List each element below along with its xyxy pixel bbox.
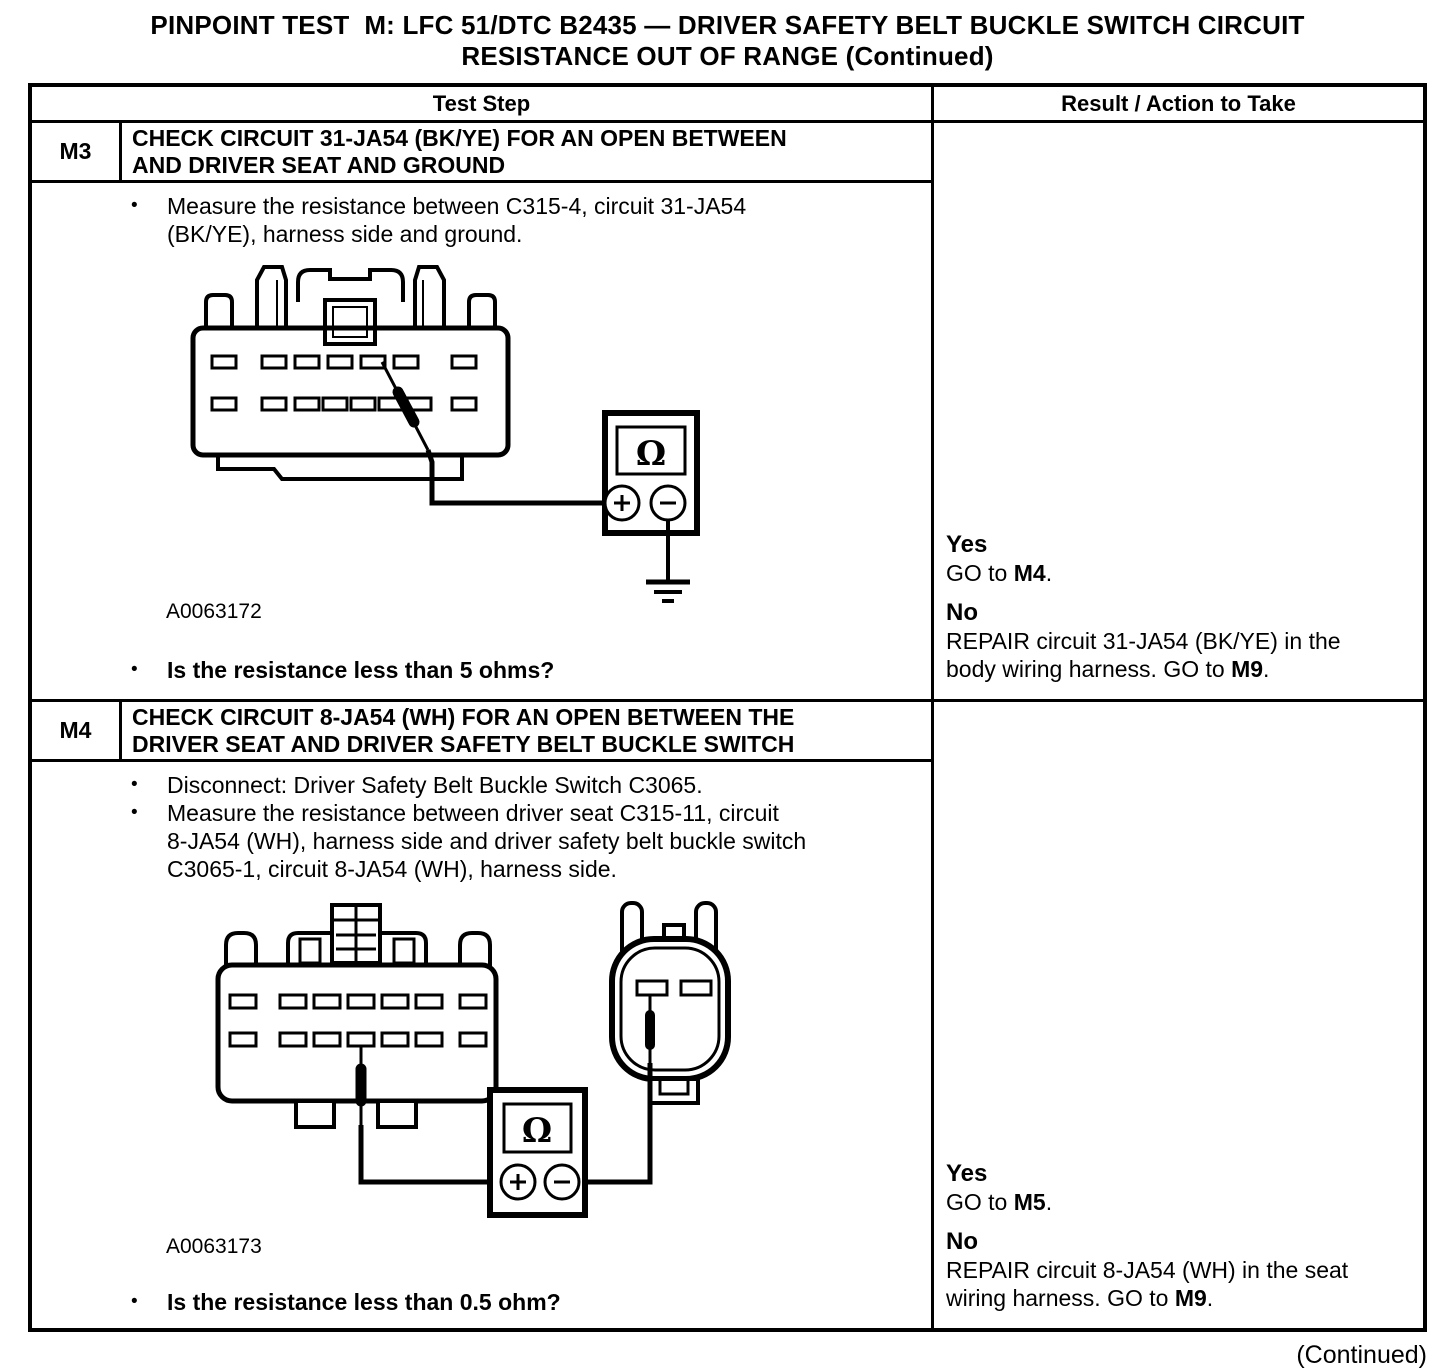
connector-buckle-c3065 <box>612 903 728 1103</box>
m4-yes-action-post: . <box>1046 1189 1052 1215</box>
omega-symbol: Ω <box>522 1111 552 1151</box>
ohmmeter: Ω <box>605 413 697 533</box>
m3-figure-id: A0063172 <box>166 600 262 624</box>
continued-note: (Continued) <box>28 1332 1429 1370</box>
bullet-icon: • <box>131 192 167 248</box>
m4-yes-action-pre: GO to <box>946 1189 1014 1215</box>
test-row-m4: M4 CHECK CIRCUIT 8-JA54 (WH) FOR AN OPEN… <box>32 702 1423 1328</box>
column-header-result-action: Result / Action to Take <box>931 87 1423 120</box>
pin-slots-top-row <box>212 356 476 368</box>
m3-yes-action-post: . <box>1046 560 1052 586</box>
m4-instruction-bullet-2: • Measure the resistance between driver … <box>32 799 931 883</box>
m4-step-title: CHECK CIRCUIT 8-JA54 (WH) FOR AN OPEN BE… <box>122 702 931 759</box>
test-lead-wire <box>428 450 606 503</box>
m4-question: • Is the resistance less than 0.5 ohm? <box>32 1288 931 1316</box>
column-header-test-step: Test Step <box>32 87 931 120</box>
m4-result-cell: Yes GO to M5. No REPAIR circuit 8-JA54 (… <box>931 702 1423 1328</box>
pin-slots-bottom-row <box>212 398 476 410</box>
bullet-icon: • <box>131 656 167 684</box>
page-title: PINPOINT TEST M: LFC 51/DTC B2435 — DRIV… <box>28 0 1427 72</box>
bullet-icon: • <box>131 1288 167 1316</box>
m3-test-step-cell: M3 CHECK CIRCUIT 31-JA54 (BK/YE) FOR AN … <box>32 123 931 699</box>
m3-connector-diagram: Ω <box>160 250 705 610</box>
pin-slots-top-row <box>230 995 486 1008</box>
m3-instruction-text: Measure the resistance between C315-4, c… <box>167 192 746 248</box>
m4-connector-diagram: Ω <box>160 895 780 1227</box>
m4-yes-action: GO to M5. <box>946 1188 1411 1216</box>
m3-no-action-target: M9 <box>1231 656 1263 682</box>
m3-yes-label: Yes <box>946 531 1411 559</box>
m3-yes-action-target: M4 <box>1014 560 1046 586</box>
m4-instruction-text-1: Disconnect: Driver Safety Belt Buckle Sw… <box>167 771 703 799</box>
m4-no-action: REPAIR circuit 8-JA54 (WH) in the seat w… <box>946 1256 1411 1312</box>
m3-no-action: REPAIR circuit 31-JA54 (BK/YE) in the bo… <box>946 627 1411 683</box>
m4-step-body: • Disconnect: Driver Safety Belt Buckle … <box>32 762 931 1328</box>
minus-terminal <box>651 486 685 520</box>
bullet-icon: • <box>131 799 167 883</box>
m3-no-action-post: . <box>1263 656 1269 682</box>
m4-question-text: Is the resistance less than 0.5 ohm? <box>167 1288 561 1316</box>
m3-question-text: Is the resistance less than 5 ohms? <box>167 656 554 684</box>
m3-no-action-pre: REPAIR circuit 31-JA54 (BK/YE) in the bo… <box>946 628 1341 682</box>
m4-instruction-text-2: Measure the resistance between driver se… <box>167 799 806 883</box>
ohmmeter: Ω <box>490 1090 585 1215</box>
m4-test-step-cell: M4 CHECK CIRCUIT 8-JA54 (WH) FOR AN OPEN… <box>32 702 931 1328</box>
plus-terminal <box>501 1165 535 1199</box>
test-probe <box>382 362 428 450</box>
m4-figure: Ω <box>32 883 931 1288</box>
m4-figure-id: A0063173 <box>166 1235 262 1259</box>
m3-figure: Ω <box>32 248 931 653</box>
m4-no-action-post: . <box>1207 1285 1213 1311</box>
minus-terminal <box>545 1165 579 1199</box>
test-lead-wire-left <box>361 1125 501 1182</box>
table-header-row: Test Step Result / Action to Take <box>32 87 1423 123</box>
omega-symbol: Ω <box>636 434 666 474</box>
m3-question: • Is the resistance less than 5 ohms? <box>32 656 931 684</box>
m3-yes-action-pre: GO to <box>946 560 1014 586</box>
m4-yes-action-target: M5 <box>1014 1189 1046 1215</box>
m3-result-cell: Yes GO to M4. No REPAIR circuit 31-JA54 … <box>931 123 1423 699</box>
m3-yes-action: GO to M4. <box>946 559 1411 587</box>
plus-terminal <box>605 486 639 520</box>
m4-no-label: No <box>946 1228 1411 1256</box>
m4-title-row: M4 CHECK CIRCUIT 8-JA54 (WH) FOR AN OPEN… <box>32 702 931 762</box>
m4-no-action-target: M9 <box>1175 1285 1207 1311</box>
document-page: PINPOINT TEST M: LFC 51/DTC B2435 — DRIV… <box>28 0 1427 1370</box>
m4-instruction-bullet-1: • Disconnect: Driver Safety Belt Buckle … <box>32 771 931 799</box>
m4-yes-label: Yes <box>946 1160 1411 1188</box>
m3-step-body: • Measure the resistance between C315-4,… <box>32 183 931 699</box>
m3-instruction-bullet: • Measure the resistance between C315-4,… <box>32 192 931 248</box>
test-row-m3: M3 CHECK CIRCUIT 31-JA54 (BK/YE) FOR AN … <box>32 123 1423 702</box>
pin-slots-bottom-row <box>230 1033 486 1046</box>
m3-step-title: CHECK CIRCUIT 31-JA54 (BK/YE) FOR AN OPE… <box>122 123 931 180</box>
m3-no-label: No <box>946 599 1411 627</box>
m4-no-action-pre: REPAIR circuit 8-JA54 (WH) in the seat w… <box>946 1257 1348 1311</box>
m4-step-id: M4 <box>32 702 122 759</box>
connector-14pin <box>193 267 508 479</box>
pinpoint-test-table: Test Step Result / Action to Take M3 CHE… <box>28 83 1427 1332</box>
m3-title-row: M3 CHECK CIRCUIT 31-JA54 (BK/YE) FOR AN … <box>32 123 931 183</box>
m3-step-id: M3 <box>32 123 122 180</box>
bullet-icon: • <box>131 771 167 799</box>
test-lead-wire-right <box>581 1063 650 1182</box>
